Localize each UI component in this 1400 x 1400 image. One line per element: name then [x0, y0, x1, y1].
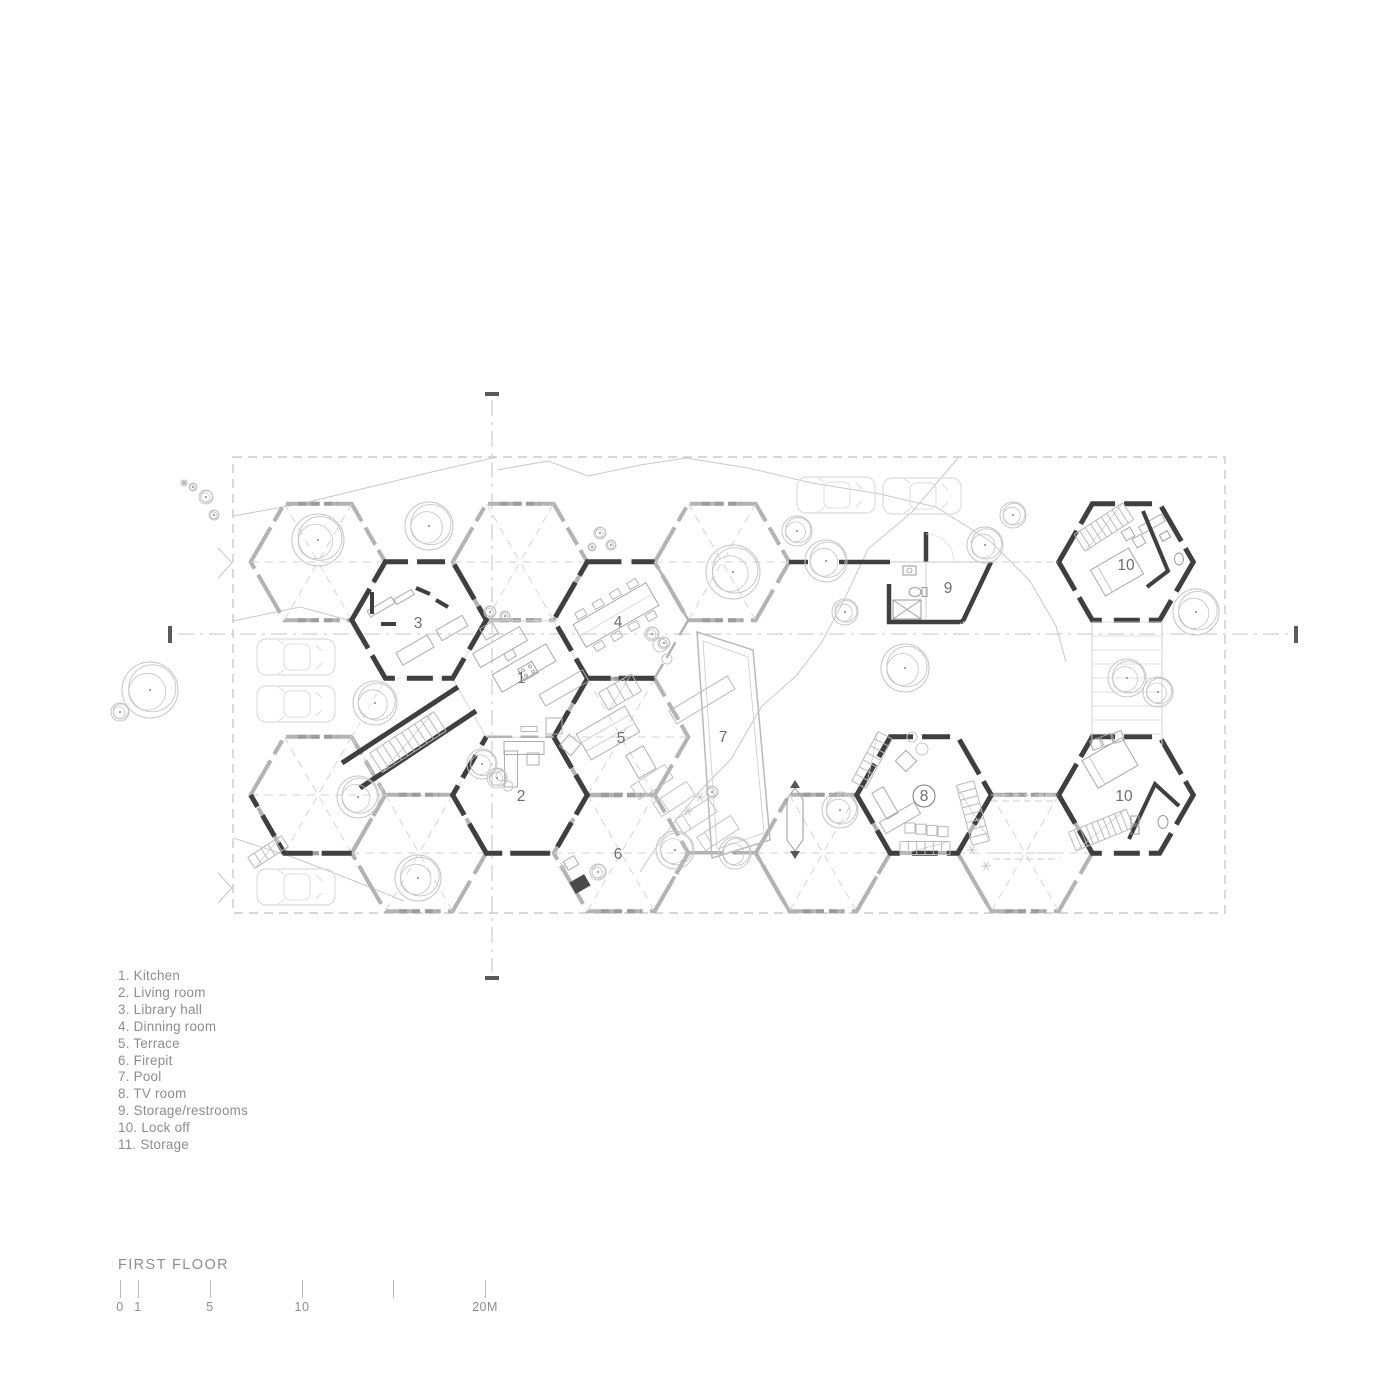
- tree: [832, 599, 858, 625]
- legend-item: 1. Kitchen: [118, 968, 248, 985]
- room-number-label: 4: [614, 614, 623, 631]
- tree: [1173, 589, 1219, 635]
- plan-title: FIRST FLOOR: [118, 1257, 229, 1273]
- open-hexagons: [251, 504, 1093, 912]
- tree: [122, 662, 178, 718]
- furniture-item: [626, 746, 656, 779]
- arrow-up-icon: [790, 780, 800, 788]
- plant-asterisk-icon: [981, 862, 991, 871]
- tree: [353, 681, 397, 725]
- room-number-label: 10: [1117, 557, 1135, 574]
- tree: [209, 510, 219, 520]
- legend-item: 2. Living room: [118, 985, 248, 1002]
- furniture-item: [938, 827, 948, 837]
- furniture-item: [576, 706, 639, 760]
- hex-wall: [554, 562, 655, 679]
- room-number-label: 8: [920, 788, 929, 805]
- tree: [484, 606, 496, 618]
- legend-item: 10. Lock off: [118, 1120, 248, 1137]
- legend-item: 6. Firepit: [118, 1053, 248, 1070]
- legend-item: 5. Terrace: [118, 1036, 248, 1053]
- site-markers: [218, 548, 991, 903]
- toilet-icon: [1175, 553, 1184, 565]
- wall-segment: [963, 562, 991, 621]
- tree: [706, 545, 760, 599]
- tree: [967, 527, 1003, 563]
- furniture-item: [1159, 531, 1170, 542]
- furniture-item: [436, 615, 468, 640]
- furniture-item: [521, 727, 537, 732]
- interior-wall: [416, 588, 430, 594]
- toilet-icon: [909, 588, 921, 597]
- furniture-item: [1082, 738, 1138, 789]
- tree: [181, 480, 187, 486]
- tree: [405, 502, 453, 550]
- tree: [588, 543, 596, 551]
- furniture-circle: [916, 743, 928, 755]
- tree: [395, 855, 441, 901]
- interior-wall: [436, 600, 448, 607]
- furniture-item: [927, 825, 937, 835]
- legend-item: 9. Storage/restrooms: [118, 1103, 248, 1120]
- tree: [606, 540, 616, 550]
- stairs: [956, 781, 989, 846]
- tree: [189, 483, 197, 491]
- tree: [337, 776, 379, 818]
- room-number-label: 10: [1115, 788, 1133, 805]
- furniture-item: [396, 635, 434, 665]
- pool-outline: [697, 632, 770, 858]
- toilet-icon: [1158, 816, 1168, 829]
- chevron-icon: [218, 873, 232, 903]
- door-swing-arc: [926, 534, 954, 562]
- corridor: [342, 687, 476, 788]
- interior-wall: [1129, 784, 1179, 839]
- contour-line: [497, 458, 1066, 662]
- legend-item: 11. Storage: [118, 1137, 248, 1154]
- furniture-item: [916, 824, 926, 834]
- tree: [1000, 502, 1026, 528]
- tree: [292, 514, 344, 566]
- car: [257, 686, 335, 722]
- tree: [500, 611, 510, 621]
- storage-restrooms: [789, 532, 991, 622]
- wall-segment: [960, 621, 963, 622]
- furniture-item: [895, 750, 916, 771]
- floor-plan-canvas: 1234567891010: [0, 0, 1400, 1400]
- stairs: [1074, 503, 1134, 551]
- axis-tick: [485, 392, 499, 396]
- car: [883, 478, 961, 514]
- room-legend: 1. Kitchen2. Living room3. Library hall4…: [118, 968, 248, 1154]
- legend-item: 4. Dinning room: [118, 1019, 248, 1036]
- car: [257, 639, 335, 675]
- legend-item: 7. Pool: [118, 1069, 248, 1086]
- tree: [706, 786, 718, 798]
- axis-tick: [1294, 626, 1298, 643]
- room-labels: 1234567891010: [414, 557, 1135, 863]
- room-number-label: 9: [944, 580, 953, 597]
- legend-item: 3. Library hall: [118, 1002, 248, 1019]
- partial-hex: [857, 853, 992, 911]
- floor-plan-page: 1234567891010 1. Kitchen2. Living room3.…: [0, 0, 1400, 1400]
- room-number-label: 2: [517, 788, 526, 805]
- room-number-label: 1: [517, 670, 526, 687]
- tree: [111, 703, 129, 721]
- tree: [881, 644, 929, 692]
- room-number-label: 6: [614, 846, 623, 863]
- room-number-label: 5: [617, 730, 626, 747]
- interior-wall: [1143, 511, 1168, 587]
- furniture-item: [905, 823, 915, 833]
- furniture-item: [394, 589, 414, 604]
- car: [257, 869, 335, 905]
- plant-asterisk-icon: [695, 793, 705, 802]
- axis-tick: [485, 976, 499, 980]
- sink-icon: [903, 566, 916, 575]
- furniture-item: [504, 649, 517, 661]
- axis-tick: [168, 626, 172, 643]
- tree: [782, 516, 812, 546]
- legend-item: 8. TV room: [118, 1086, 248, 1103]
- room-number-label: 3: [414, 615, 423, 632]
- pool: [631, 632, 803, 859]
- contour-line: [233, 457, 497, 516]
- float-marker: [787, 788, 803, 851]
- sink-drain: [907, 568, 912, 573]
- tree: [594, 527, 606, 539]
- tree: [199, 490, 213, 504]
- tree: [822, 792, 858, 828]
- shaft-x: [893, 600, 921, 619]
- boardwalk: [991, 562, 1162, 859]
- room-number-label: 7: [719, 729, 728, 746]
- chevron-icon: [218, 548, 232, 578]
- tree: [590, 864, 606, 880]
- arrow-down-icon: [790, 851, 800, 859]
